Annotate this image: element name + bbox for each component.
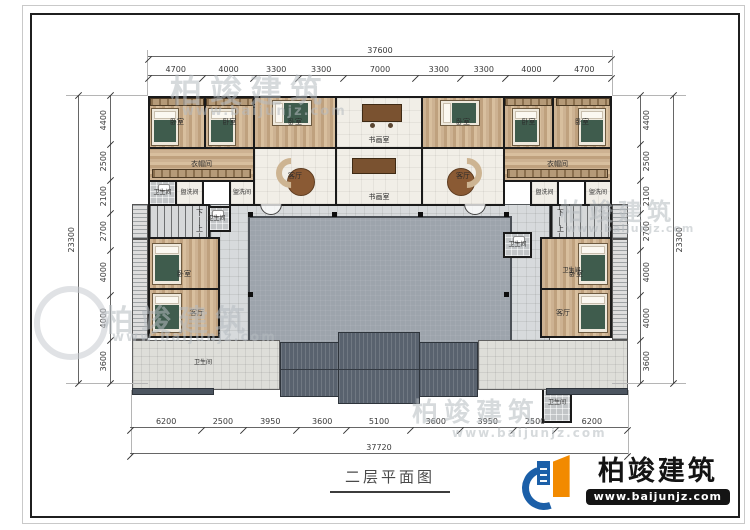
watermark-logo-circle (34, 286, 108, 360)
column-dot (504, 292, 509, 297)
study-desk-lower (352, 158, 396, 174)
dim-value: 7000 (344, 62, 417, 75)
logo-building-icon (522, 452, 578, 510)
side-ledge-right (612, 204, 628, 239)
chair (370, 123, 375, 128)
dim-value: 2500 (641, 144, 653, 180)
dim-value: 4000 (506, 62, 556, 75)
study-desk-upper (362, 104, 402, 122)
room-label: 卧室 (575, 119, 589, 126)
dim-value: 4000 (98, 250, 110, 295)
edge-strip-left (132, 239, 148, 340)
dim-top-segments: 4700 4000 3300 3300 7000 3300 3300 4000 … (148, 62, 612, 76)
room-living-right: 客厅 (421, 147, 505, 206)
wardrobe (206, 98, 253, 106)
chair (388, 123, 393, 128)
dim-right-segments: 4400 2500 2100 2700 4000 4000 3600 (640, 96, 653, 383)
logo-tower-blue (537, 461, 550, 485)
wardrobe (556, 98, 610, 106)
logo-website-url: www.baijunjz.com (586, 489, 730, 505)
room-label: 客厅 (190, 310, 204, 317)
dim-value: 2100 (641, 180, 653, 213)
room-label: 客厅 (288, 173, 302, 180)
room-living-left: 客厅 (253, 147, 337, 206)
extension-line (612, 383, 686, 384)
dim-value: 3300 (254, 62, 299, 75)
eave-strip-right (546, 388, 628, 395)
dim-value: 4400 (98, 96, 110, 144)
room-label: 卫生间 (207, 216, 225, 222)
extension-line (628, 390, 629, 456)
dim-value: 3300 (299, 62, 344, 75)
gate-roof-center (338, 332, 420, 404)
bed (578, 108, 606, 146)
room-wash-r2: 盥洗间 (584, 180, 612, 206)
room-label: 卧室 (288, 119, 302, 126)
drawing-title: 二层平面图 (330, 466, 450, 493)
dim-value: 37600 (148, 43, 612, 56)
dim-value: 4700 (557, 62, 612, 75)
column-dot (248, 212, 253, 217)
cloak-wardrobe-left (152, 169, 251, 178)
bed (152, 243, 182, 285)
column-dot (504, 212, 509, 217)
dim-value: 2700 (641, 213, 653, 250)
side-ledge-left (132, 204, 148, 239)
dim-value: 4000 (641, 295, 653, 340)
room-label: 书画室 (369, 194, 390, 201)
dim-value: 3600 (297, 414, 348, 427)
company-logo: 柏竣建筑 www.baijunjz.com (522, 452, 730, 510)
dim-value: 3950 (461, 414, 514, 427)
roof-ridge (339, 369, 419, 370)
terrace-right (478, 340, 628, 390)
bed (512, 108, 540, 146)
column-dot (248, 292, 253, 297)
dim-value: 5100 (347, 414, 410, 427)
bed (208, 108, 236, 146)
bed (152, 293, 182, 333)
dim-value: 3300 (461, 62, 506, 75)
dim-value: 4700 (148, 62, 203, 75)
stair-down-label: 下 (556, 210, 565, 217)
room-label: 盥洗间 (180, 190, 198, 196)
room-label: 盥洗间 (233, 190, 251, 196)
room-label: 盥洗间 (535, 190, 553, 196)
wardrobe (150, 98, 204, 106)
edge-strip-right (612, 239, 628, 340)
dim-value: 2500 (98, 144, 110, 180)
room-label: 卧室 (569, 271, 583, 278)
logo-tower-orange (553, 455, 570, 497)
dim-value: 3600 (411, 414, 462, 427)
room-label: 客厅 (456, 173, 470, 180)
room-label: 衣帽间 (191, 161, 212, 168)
stair-up-label: 上 (195, 226, 204, 233)
room-label: 卧室 (223, 119, 237, 126)
room-label: 卫生间 (548, 400, 566, 406)
stair-up-label: 上 (556, 226, 565, 233)
column-dot (332, 212, 337, 217)
cloak-wardrobe-right (507, 169, 608, 178)
room-label: 卧室 (170, 119, 184, 126)
dim-value: 3300 (416, 62, 461, 75)
floor-plan-sheet: 卧室 卧室 卧室 书画室 卧室 卧室 卧室 衣帽间 衣帽间 卫生间 盥洗间 卫生… (0, 0, 750, 530)
room-label: 盥洗间 (589, 190, 607, 196)
room-study-lower: 书画室 (335, 147, 423, 206)
logo-brand-name: 柏竣建筑 (598, 457, 718, 487)
courtyard (248, 216, 512, 348)
room-label: 卫生间 (153, 190, 171, 196)
room-label: 衣帽间 (547, 161, 568, 168)
bed (151, 108, 179, 146)
dim-bottom-segments: 6200 2500 3950 3600 5100 3600 3950 2500 … (130, 414, 628, 428)
room-label: 客厅 (556, 310, 570, 317)
room-label: 卧室 (177, 271, 191, 278)
wardrobe (505, 98, 552, 106)
dim-value: 4400 (641, 96, 653, 144)
stairwell-right: 下 上 (550, 204, 612, 239)
dim-value: 2700 (98, 213, 110, 250)
room-label: 卫生间 (508, 242, 526, 248)
column-dot (418, 212, 423, 217)
room-wash-l2: 盥洗间 (229, 180, 255, 206)
dim-value: 2100 (98, 180, 110, 213)
dim-value: 3600 (98, 340, 110, 383)
dim-value: 4000 (641, 250, 653, 295)
dim-value: 2500 (202, 414, 243, 427)
dim-value: 6200 (556, 414, 628, 427)
dim-value: 6200 (130, 414, 202, 427)
room-bath-l1: 卫生间 (148, 180, 177, 206)
bed (578, 293, 608, 333)
dim-value: 2500 (514, 414, 555, 427)
dim-top-total: 37600 (148, 43, 612, 57)
room-label: 卧室 (456, 119, 470, 126)
room-wash-l1: 盥洗间 (175, 180, 204, 206)
room-label: 书画室 (369, 137, 390, 144)
room-label: 卫生间 (194, 360, 212, 366)
stairwell-left: 下 上 (148, 204, 210, 239)
logo-text-block: 柏竣建筑 www.baijunjz.com (586, 457, 730, 505)
stair-down-label: 下 (195, 210, 204, 217)
dim-value: 23300 (674, 96, 686, 383)
eave-strip-left (132, 388, 214, 395)
room-label: 卧室 (522, 119, 536, 126)
dim-value: 3600 (641, 340, 653, 383)
room-bath-r1: 卫生间 (503, 232, 532, 258)
room-wash-r1: 盥洗间 (530, 180, 559, 206)
dim-value: 3950 (244, 414, 297, 427)
dim-value: 4000 (203, 62, 253, 75)
dim-right-total: 23300 (673, 96, 686, 383)
bed (578, 243, 608, 285)
